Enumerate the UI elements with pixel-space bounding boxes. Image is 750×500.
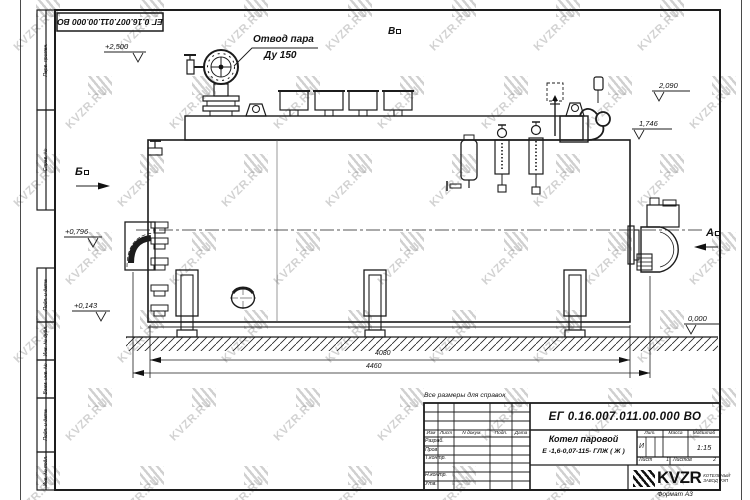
mass-label: Масса [663,430,688,437]
scale-label: Масштаб [688,430,720,437]
boiler-shell [148,140,630,322]
side-label-inv-dubl: Инв. № дубл. [37,322,55,360]
elevation-2090: 2,090 [659,81,678,90]
dim-4460-value: 4460 [366,363,382,370]
sheets-cell: Листов2 [673,457,716,463]
front-fittings [125,141,256,316]
row-utv: Утв. [425,481,437,487]
format-note: Формат А3 [630,490,720,499]
reference-note: Все размеры для справок [424,392,505,399]
view-a-mark [715,231,720,236]
kvzr-logo-text: KVZR [657,468,701,488]
view-label-a: А [706,227,720,239]
gauge-1 [447,135,477,191]
side-label-podp-data-1: Подп. и дата [37,268,55,322]
elevation-2500: +2,500 [105,42,128,51]
side-label-inv-podl: Инв. № подл. [37,452,55,490]
view-b-arrowhead [98,183,110,190]
dim-4080-value: 4080 [375,350,391,357]
gauge-3 [529,122,543,194]
titleblock-doc-number: ЕГ 0.16.007.011.00.000 ВО [532,407,718,427]
view-a-arrowhead [694,244,706,251]
side-label-sprav-no: Справ. № [37,110,55,210]
sheet-cell: Лист1 [639,457,669,463]
control-box [560,116,588,142]
row-prov: Пров. [425,447,439,453]
burner-body [641,227,678,272]
safety-valves [278,91,414,116]
view-v-mark [396,29,401,34]
steam-outlet-valve [184,48,318,116]
titleblock-product-code: Е -1,6-0,07-115- ГЛЖ ( Ж ) [530,447,637,456]
level-gauges [447,122,543,194]
row-tkontr: Т.контр. [425,455,446,461]
elevation-1746: 1,746 [639,119,658,128]
company-logo: KVZR КОТЕЛЬНЫЙ ЗАВОД РЭП [633,468,730,488]
col-podp: Подп. [490,430,512,437]
ground [126,337,718,351]
gauge-2 [495,125,509,192]
elevation-0796: +0,796 [65,227,88,236]
steam-dome-platform [185,116,583,140]
kvzr-logo-subtext: КОТЕЛЬНЫЙ ЗАВОД РЭП [703,473,730,483]
side-label-podp-data-2: Подп. и дата [37,398,55,452]
col-list: Лист [438,430,454,437]
view-label-b: Б [75,166,89,178]
kvzr-logo-icon [633,470,655,487]
col-data: Дата [512,430,530,437]
view-label-v: В [388,26,401,37]
dimension-lines [133,272,650,378]
lit-label: Лит. [637,430,663,437]
scale-value: 1:15 [688,441,720,453]
view-arrows [76,183,718,251]
titleblock-product-name: Котел паровой [532,433,635,444]
row-nkontr: Н.контр. [425,472,447,478]
view-b-mark [84,170,89,175]
burner [628,198,679,272]
top-doc-number: ЕГ 0.16.007.011.00.000 ВО [57,13,163,31]
drawing-sheet: KVZR.RUKVZR.RUKVZR.RUKVZR.RUKVZR.RUKVZR.… [0,0,750,500]
burner-junction-box [647,205,679,227]
side-label-perv-primen: Перв. примен. [37,10,55,110]
elevation-marks [64,52,719,334]
lit-value: И [637,440,646,452]
boiler-body [136,116,705,327]
col-izm: Изм [424,430,438,437]
steam-outlet-callout-line2: Ду 150 [264,50,297,61]
elevation-0143: +0,143 [74,301,97,310]
steam-outlet-callout-line1: Отвод пара [253,34,314,45]
col-ndoc: N докум. [454,430,490,437]
siphon-loop [596,112,610,126]
elevation-0000: 0,000 [688,314,707,323]
row-razrab: Разраб. [425,438,444,444]
side-label-vzam-inv: Взам. инв. № [37,360,55,398]
